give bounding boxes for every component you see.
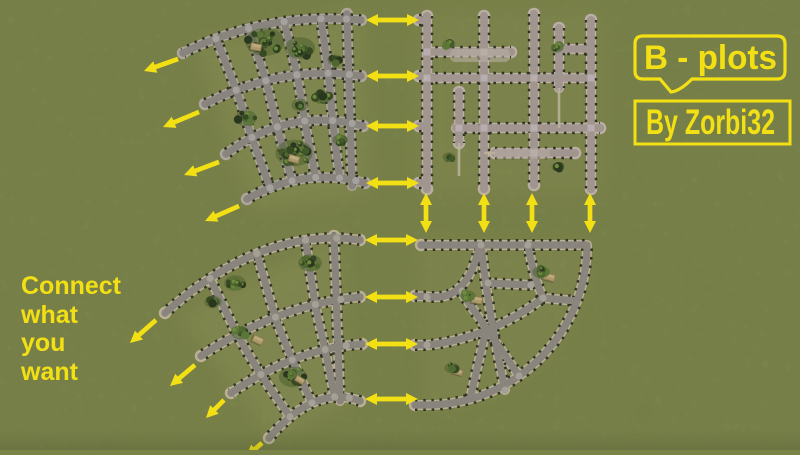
- svg-text:B - plots: B - plots: [644, 39, 777, 77]
- svg-text:want: want: [20, 358, 79, 386]
- svg-text:By Zorbi32: By Zorbi32: [646, 103, 775, 142]
- svg-text:what: what: [20, 301, 79, 329]
- svg-text:Connect: Connect: [21, 272, 122, 300]
- svg-text:you: you: [21, 329, 65, 357]
